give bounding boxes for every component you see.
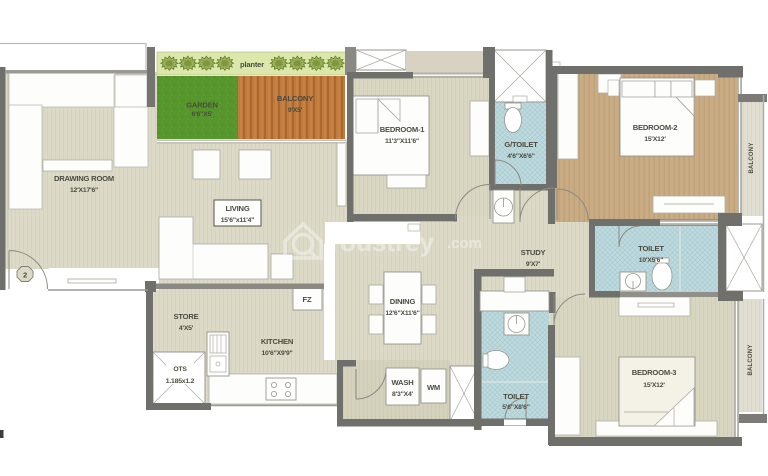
svg-text:KITCHEN: KITCHEN xyxy=(261,337,293,346)
svg-text:15'6"x11'4": 15'6"x11'4" xyxy=(221,217,255,224)
svg-text:10'6"X9'9": 10'6"X9'9" xyxy=(261,350,292,357)
svg-text:roustrey: roustrey xyxy=(330,227,435,257)
svg-text:15'X12': 15'X12' xyxy=(644,136,666,143)
svg-text:15'X12': 15'X12' xyxy=(643,382,665,389)
svg-text:1.185x1.2: 1.185x1.2 xyxy=(166,378,195,385)
svg-text:G/TOILET: G/TOILET xyxy=(504,140,538,149)
svg-text:BALCONY: BALCONY xyxy=(277,94,313,103)
svg-text:BEDROOM-1: BEDROOM-1 xyxy=(380,125,426,134)
svg-text:4'X5': 4'X5' xyxy=(179,325,194,332)
svg-text:TOILET: TOILET xyxy=(503,392,529,401)
svg-text:WM: WM xyxy=(427,383,440,392)
svg-text:8'3"X4': 8'3"X4' xyxy=(392,391,414,398)
svg-text:OTS: OTS xyxy=(173,366,187,373)
svg-text:BALCONY: BALCONY xyxy=(749,142,755,173)
svg-text:12'6"X11'6": 12'6"X11'6" xyxy=(385,310,419,317)
svg-text:planter: planter xyxy=(240,60,264,69)
svg-text:9'X7': 9'X7' xyxy=(526,261,541,268)
svg-text:5'6"X8'6": 5'6"X8'6" xyxy=(502,404,530,411)
svg-text:DRAWING ROOM: DRAWING ROOM xyxy=(54,174,114,183)
svg-text:BEDROOM-2: BEDROOM-2 xyxy=(633,123,678,132)
svg-text:GARDEN: GARDEN xyxy=(186,101,218,110)
svg-text:WASH: WASH xyxy=(392,378,414,387)
svg-text:DINING: DINING xyxy=(390,297,416,306)
svg-text:TOILET: TOILET xyxy=(638,244,664,253)
svg-text:BEDROOM-3: BEDROOM-3 xyxy=(632,368,677,377)
svg-text:STORE: STORE xyxy=(173,312,198,321)
svg-text:2: 2 xyxy=(23,271,27,280)
svg-text:10'X5'6": 10'X5'6" xyxy=(639,257,664,264)
svg-text:.com: .com xyxy=(447,235,482,252)
svg-text:9'X5': 9'X5' xyxy=(288,107,303,114)
svg-text:12'X17'6": 12'X17'6" xyxy=(70,187,98,194)
svg-text:BALCONY: BALCONY xyxy=(748,344,754,375)
svg-text:11'3"X11'6": 11'3"X11'6" xyxy=(385,138,419,145)
svg-text:STUDY: STUDY xyxy=(521,248,546,257)
svg-text:4'6"X6'6": 4'6"X6'6" xyxy=(507,153,535,160)
svg-text:FZ: FZ xyxy=(303,295,312,304)
svg-text:6'6"X5': 6'6"X5' xyxy=(192,111,214,118)
svg-text:LIVING: LIVING xyxy=(225,204,249,213)
